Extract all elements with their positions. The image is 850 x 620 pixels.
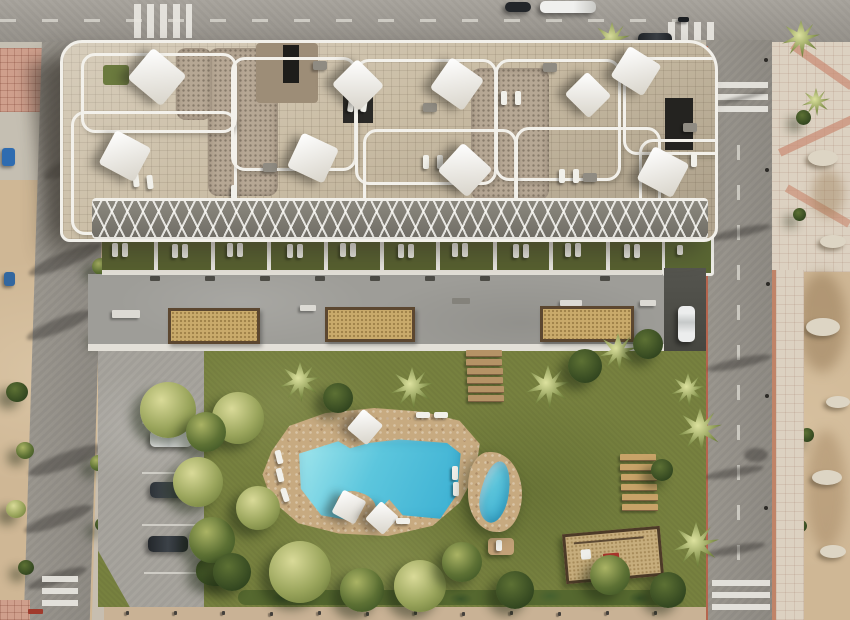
entrance-mark: [260, 276, 270, 281]
lane-marking: [737, 120, 740, 560]
entrance-mark: [205, 276, 215, 281]
garden-tree: [590, 555, 630, 595]
bollard: [126, 611, 129, 615]
garden-tree: [340, 568, 384, 612]
garden-tree: [442, 542, 482, 582]
entrance-mark: [370, 276, 380, 281]
pool-lounger: [452, 466, 458, 480]
entrance-mark: [425, 276, 435, 281]
pool-lounger: [434, 412, 448, 418]
street-lamp: [765, 168, 769, 172]
garden-shrub: [651, 459, 673, 481]
roof-unit: [423, 103, 437, 112]
bollard: [510, 611, 513, 615]
patio-chair: [677, 245, 683, 255]
roof-unit: [543, 63, 557, 72]
garden-tree: [236, 486, 280, 530]
wooden-step: [466, 350, 502, 357]
bollard: [270, 612, 273, 616]
bollard: [462, 612, 465, 616]
bench: [112, 310, 140, 318]
shrub: [6, 500, 26, 518]
entrance-mark: [600, 276, 610, 281]
planter-box: [540, 306, 634, 342]
rooftop-lounger: [559, 169, 565, 183]
bollard: [366, 612, 369, 616]
east-sidewalk: [772, 270, 804, 620]
bollard: [318, 611, 321, 615]
play-swing: [580, 549, 591, 560]
parking-line: [142, 524, 200, 526]
garden-tree: [633, 329, 663, 359]
bollard: [606, 611, 609, 615]
street-lamp: [766, 282, 770, 286]
wooden-lounger: [621, 484, 657, 491]
recycling-bin: [4, 272, 15, 286]
rock: [808, 150, 838, 166]
rock: [820, 235, 846, 248]
dirt-pit: [806, 430, 846, 550]
shrub: [793, 208, 806, 221]
pool-lounger: [416, 412, 430, 418]
play-bar: [574, 536, 644, 544]
street-lamp: [765, 394, 769, 398]
rooftop-lounger: [691, 153, 697, 167]
garden-tree: [186, 412, 226, 452]
garden-tree: [394, 560, 446, 612]
planter-box: [325, 307, 415, 342]
rooftop-lounger: [231, 185, 237, 199]
rooftop-lounger: [515, 91, 521, 105]
bollard: [174, 611, 177, 615]
garden-tree: [173, 457, 223, 507]
rooftop-lounger: [501, 91, 507, 105]
roof-unit: [583, 173, 597, 182]
bollard: [222, 611, 225, 615]
shrub: [18, 560, 34, 575]
wooden-step: [466, 359, 502, 366]
red-bench: [28, 609, 43, 614]
roof-unit: [263, 163, 277, 172]
rock: [812, 470, 842, 485]
terrace-walkway: [102, 270, 662, 275]
crosswalk: [712, 578, 770, 610]
garden-tree: [568, 349, 602, 383]
aerial-render-scene: [0, 0, 850, 620]
planter-box: [168, 308, 260, 344]
wooden-step: [467, 368, 503, 375]
entrance-mark: [315, 276, 325, 281]
shrub: [796, 110, 811, 125]
bollard: [558, 612, 561, 616]
entrance-mark: [150, 276, 160, 281]
bench: [452, 298, 470, 304]
bench: [640, 300, 656, 306]
wooden-lounger: [622, 494, 658, 501]
rock: [826, 396, 850, 408]
garden-tree: [323, 383, 353, 413]
crosswalk: [134, 4, 192, 38]
garden-tree: [269, 541, 331, 603]
white-van: [540, 1, 596, 13]
garden-tree: [496, 571, 534, 609]
car-shadow-blob: [744, 448, 768, 462]
wooden-lounger: [622, 504, 658, 511]
street-lamp: [764, 58, 768, 62]
parked-car-white: [678, 306, 695, 342]
recycling-bin: [2, 148, 15, 166]
pool-lounger: [453, 482, 459, 496]
dark-car: [505, 2, 531, 12]
wooden-lounger: [620, 454, 656, 461]
street-lamp: [764, 506, 768, 510]
motorcycle: [678, 17, 689, 22]
crosswalk: [42, 576, 78, 606]
roof-unit: [683, 123, 697, 132]
roof-unit: [313, 61, 327, 70]
bollard: [654, 611, 657, 615]
rooftop-lounger: [573, 169, 579, 183]
shrub: [6, 382, 28, 402]
shrub: [16, 442, 34, 459]
dirt-pit: [812, 170, 844, 218]
rock: [806, 318, 840, 336]
parked-car-dark: [148, 536, 188, 552]
garden-tree: [213, 553, 251, 591]
rock: [820, 545, 846, 558]
wooden-step: [468, 395, 504, 402]
pool-lounger: [396, 518, 410, 524]
wooden-step: [467, 377, 503, 384]
lane-marking: [0, 19, 700, 22]
pink-tile-patch: [0, 600, 30, 620]
rooftop-lounger: [423, 155, 429, 169]
deck-lounger: [496, 540, 502, 551]
entrance-mark: [480, 276, 490, 281]
parking-line: [144, 572, 200, 574]
pergola-band: [92, 198, 708, 239]
bench: [300, 305, 316, 311]
wooden-step: [468, 386, 504, 393]
garden-tree: [650, 572, 686, 608]
